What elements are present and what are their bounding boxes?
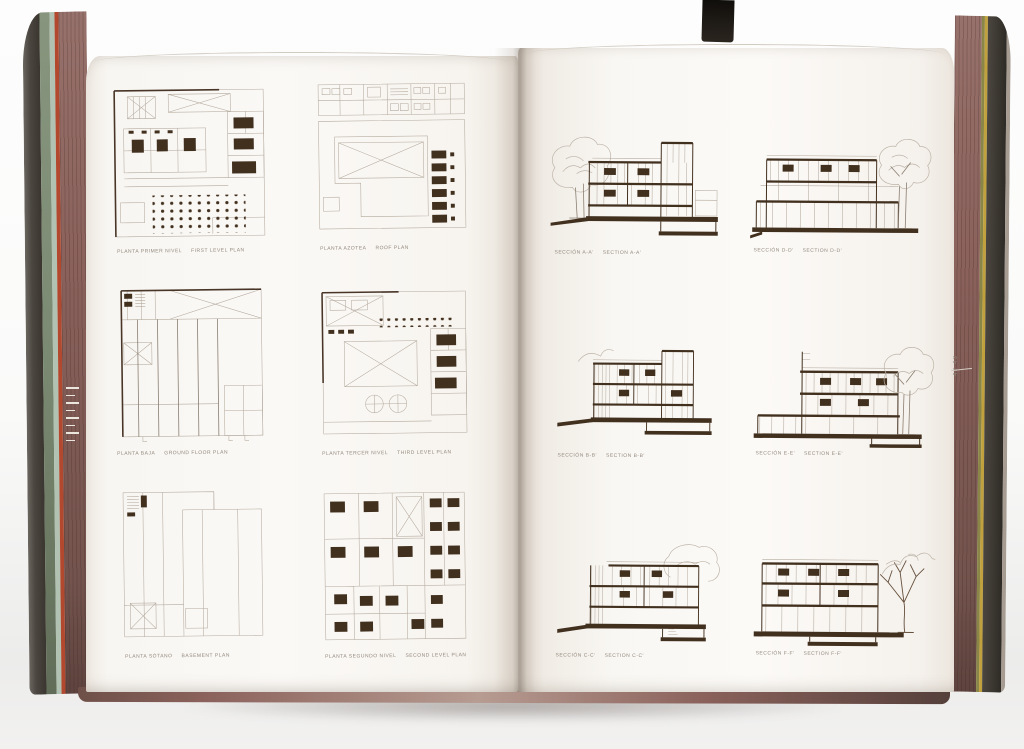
figure-caption: SECCIÓN A-A'SECTION A-A'	[554, 249, 641, 256]
caption-es: PLANTA BAJA	[117, 450, 155, 456]
roof-plan-drawing	[314, 79, 474, 239]
ground-floor-plan-drawing	[111, 283, 273, 445]
caption-en: SECTION D-D'	[803, 248, 843, 254]
edge-tick	[66, 440, 75, 442]
figure-first-level-plan: PLANTA PRIMER NIVELFIRST LEVEL PLAN	[111, 81, 275, 243]
edge-tick	[66, 402, 79, 404]
caption-en: GROUND FLOOR PLAN	[164, 450, 228, 457]
figure-section-f-f: SECCIÓN F-F'SECTION F-F'	[750, 539, 937, 652]
edge-tick	[66, 432, 79, 434]
caption-en: SECTION C-C'	[605, 653, 645, 659]
section-a-a-drawing	[543, 127, 726, 240]
figure-caption: PLANTA AZOTEAROOF PLAN	[320, 245, 409, 252]
edge-tick	[66, 410, 75, 412]
caption-es: SECCIÓN A-A'	[554, 249, 593, 255]
second-level-plan-drawing	[319, 485, 471, 647]
edge-tick	[66, 395, 75, 397]
figure-caption: PLANTA SÓTANOBASEMENT PLAN	[125, 653, 230, 660]
caption-en: ROOF PLAN	[375, 245, 408, 251]
caption-es: PLANTA SÓTANO	[125, 653, 173, 660]
book-top-edge-mark	[701, 0, 734, 42]
caption-en: SECTION B-B'	[606, 453, 645, 459]
caption-en: SECOND LEVEL PLAN	[405, 652, 466, 659]
figure-caption: SECCIÓN B-B'SECTION B-B'	[558, 452, 645, 459]
first-level-plan-drawing	[111, 81, 273, 243]
figure-section-a-a: SECCIÓN A-A'SECTION A-A'	[543, 127, 726, 240]
figure-roof-plan: PLANTA AZOTEAROOF PLAN	[314, 79, 476, 239]
caption-es: SECCIÓN F-F'	[756, 650, 795, 656]
section-e-e-drawing	[750, 335, 936, 448]
caption-es: SECCIÓN E-E'	[756, 450, 796, 456]
figure-caption: SECCIÓN E-E'SECTION E-E'	[756, 450, 843, 457]
figure-caption: SECCIÓN C-C'SECTION C-C'	[556, 652, 645, 659]
caption-es: SECCIÓN D-D'	[754, 247, 794, 253]
basement-plan-drawing	[115, 485, 267, 645]
figure-section-c-c: SECCIÓN C-C'SECTION C-C'	[550, 535, 725, 648]
caption-en: SECTION E-E'	[804, 451, 843, 457]
third-level-plan-drawing	[316, 283, 475, 442]
edge-tick	[66, 387, 79, 389]
section-f-f-drawing	[750, 539, 936, 652]
caption-es: PLANTA SEGUNDO NIVEL	[325, 653, 396, 660]
figure-ground-floor-plan: PLANTA BAJAGROUND FLOOR PLAN	[111, 283, 275, 445]
figure-section-e-e: SECCIÓN E-E'SECTION E-E'	[750, 335, 937, 448]
figure-third-level-plan: PLANTA TERCER NIVELTHIRD LEVEL PLAN	[316, 283, 476, 442]
caption-en: SECTION F-F'	[803, 651, 841, 657]
caption-es: PLANTA AZOTEA	[320, 245, 366, 252]
caption-en: FIRST LEVEL PLAN	[191, 247, 245, 254]
caption-en: BASEMENT PLAN	[182, 653, 230, 660]
caption-en: SECTION A-A'	[603, 250, 642, 256]
left-fore-edge-stripes	[22, 11, 93, 695]
caption-es: PLANTA TERCER NIVEL	[322, 450, 388, 457]
figure-basement-plan: PLANTA SÓTANOBASEMENT PLAN	[115, 485, 269, 645]
caption-es: PLANTA PRIMER NIVEL	[117, 248, 182, 255]
caption-en: THIRD LEVEL PLAN	[397, 449, 452, 456]
figure-second-level-plan: PLANTA SEGUNDO NIVELSECOND LEVEL PLAN	[319, 485, 473, 647]
caption-es: SECCIÓN B-B'	[558, 452, 598, 458]
figure-caption: SECCIÓN D-D'SECTION D-D'	[754, 247, 843, 254]
edge-tick	[66, 425, 75, 427]
book-photo-scene: PLANTA PRIMER NIVELFIRST LEVEL PLAN	[0, 0, 1024, 749]
figure-section-d-d: SECCIÓN D-D'SECTION D-D'	[748, 131, 936, 244]
section-b-b-drawing	[552, 331, 725, 444]
section-d-d-drawing	[748, 131, 935, 244]
figure-section-b-b: SECCIÓN B-B'SECTION B-B'	[552, 331, 725, 444]
figure-caption: SECCIÓN F-F'SECTION F-F'	[756, 650, 842, 657]
fore-edge-registration-ticks	[66, 387, 79, 447]
edge-tick	[66, 417, 79, 419]
caption-es: SECCIÓN C-C'	[556, 652, 596, 658]
section-c-c-drawing	[550, 535, 725, 648]
